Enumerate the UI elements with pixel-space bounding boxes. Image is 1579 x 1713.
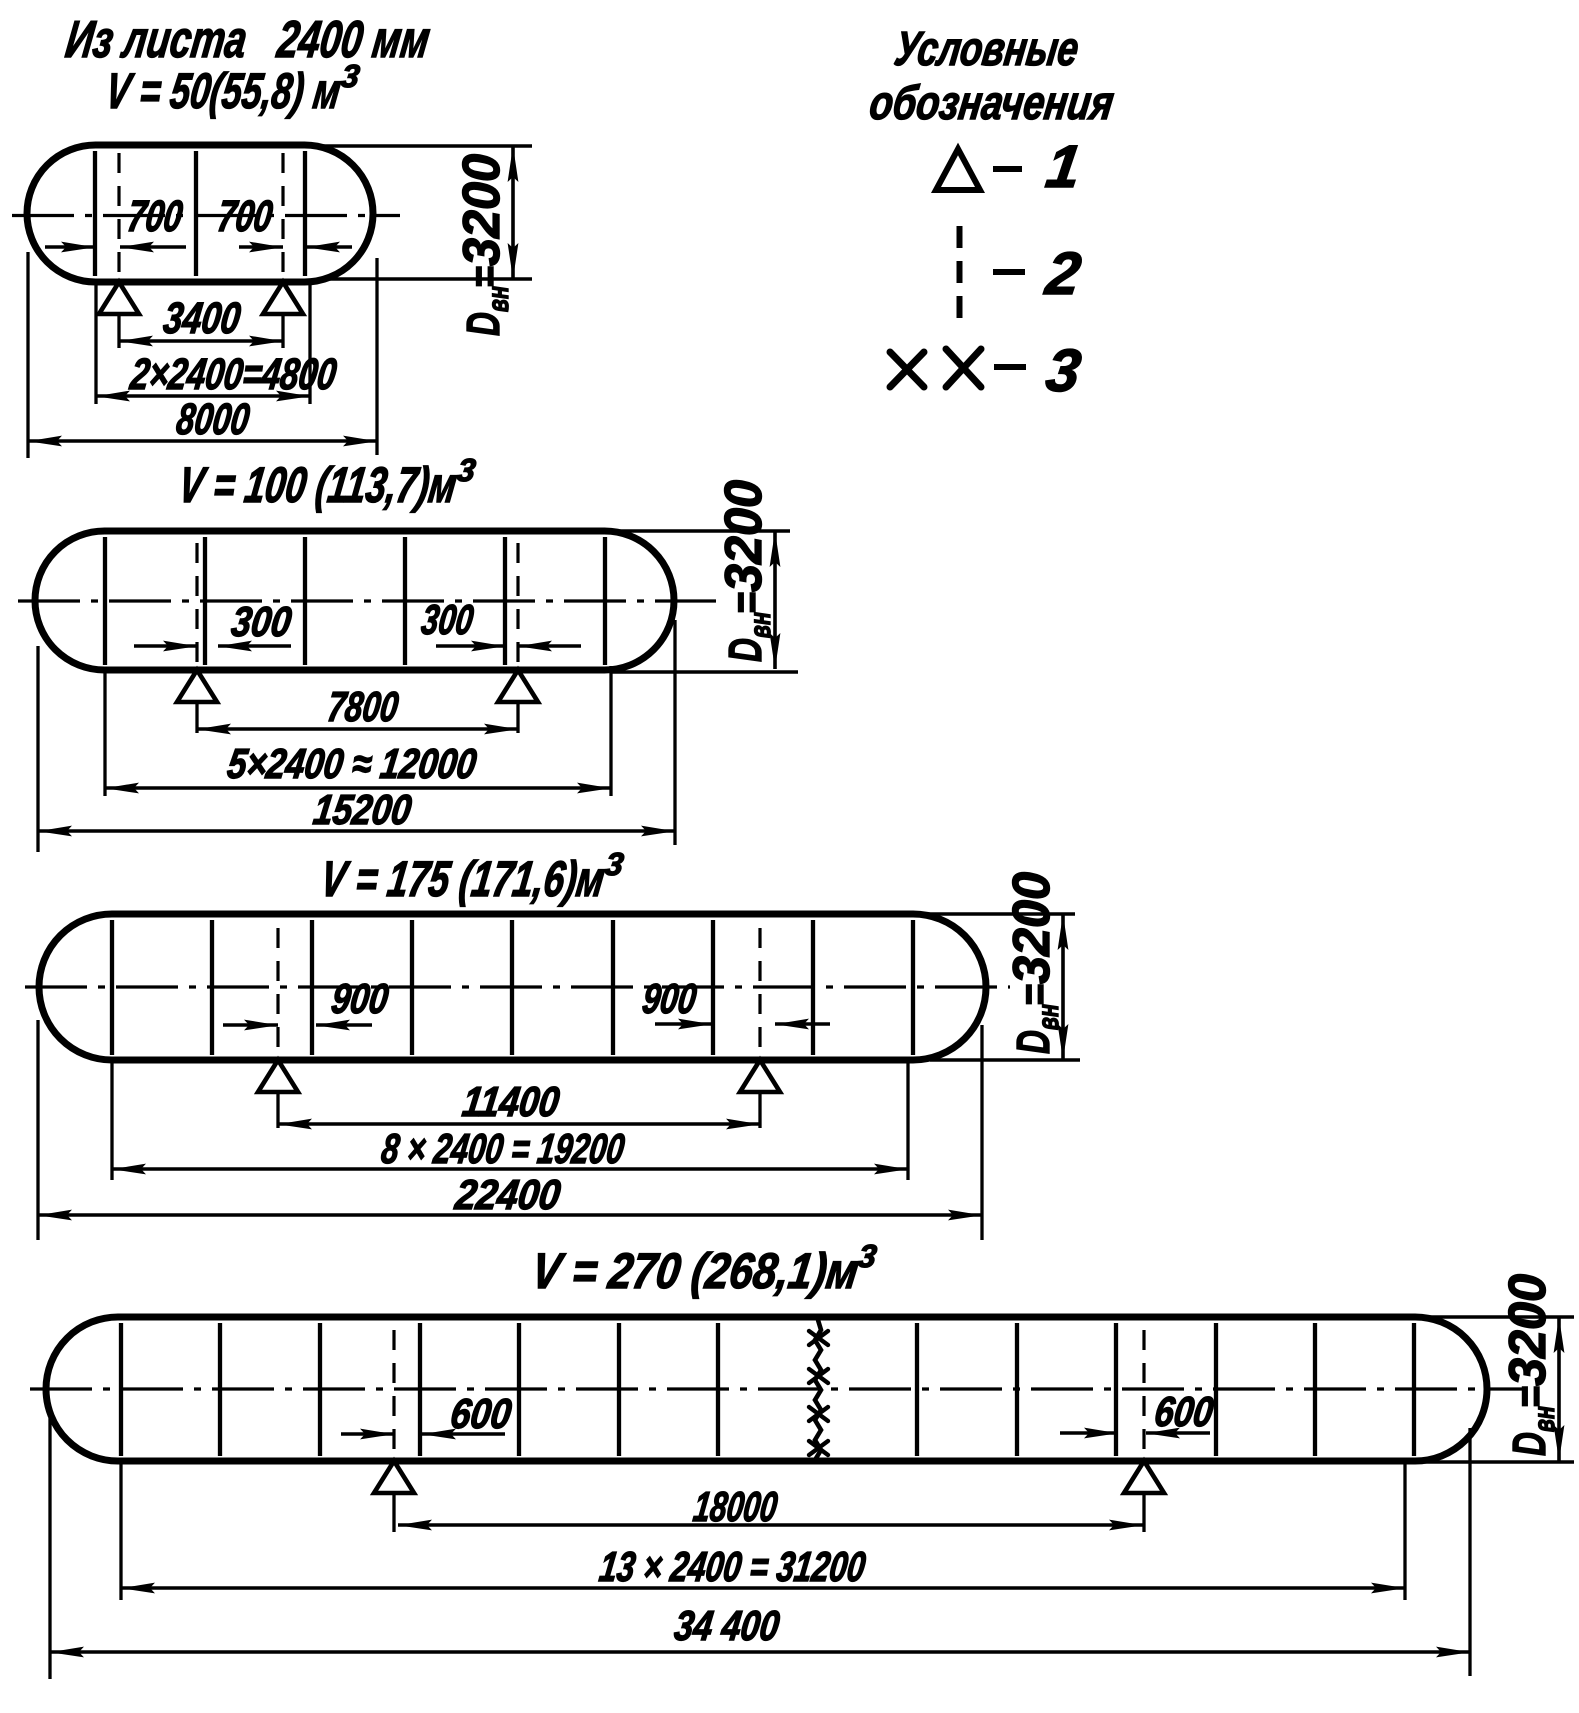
svg-text:=: = — [1506, 1386, 1555, 1408]
svg-text:3200: 3200 — [453, 154, 511, 266]
svg-text:600: 600 — [448, 1390, 515, 1437]
svg-text:900: 900 — [329, 975, 392, 1022]
svg-text:600: 600 — [1152, 1388, 1217, 1435]
svg-text:300: 300 — [229, 598, 295, 645]
svg-text:8000: 8000 — [174, 395, 253, 444]
svg-text:13 × 2400 = 31200: 13 × 2400 = 31200 — [597, 1543, 869, 1590]
svg-text:V = 175 (171,6)м: V = 175 (171,6)м — [317, 851, 608, 907]
svg-text:700: 700 — [215, 192, 276, 241]
svg-text:7800: 7800 — [325, 683, 402, 730]
svg-text:V = 100 (113,7)м: V = 100 (113,7)м — [175, 457, 460, 513]
svg-text:Условные: Условные — [891, 22, 1082, 76]
svg-text:15200: 15200 — [311, 786, 415, 833]
svg-text:22400: 22400 — [452, 1171, 564, 1218]
svg-text:300: 300 — [419, 596, 477, 643]
svg-text:8 × 2400 = 19200: 8 × 2400 = 19200 — [379, 1125, 628, 1172]
svg-text:3400: 3400 — [161, 294, 244, 343]
svg-text:11400: 11400 — [460, 1078, 563, 1125]
svg-text:обозначения: обозначения — [866, 76, 1117, 130]
svg-text:2×2400=4800: 2×2400=4800 — [127, 350, 340, 399]
svg-text:V = 50(55,8) м: V = 50(55,8) м — [102, 63, 344, 119]
svg-text:Из листа 2400 мм: Из листа 2400 мм — [62, 11, 433, 69]
svg-text:3200: 3200 — [1003, 872, 1061, 984]
svg-text:=: = — [722, 592, 771, 614]
svg-text:34 400: 34 400 — [672, 1602, 783, 1649]
svg-text:=: = — [1010, 984, 1059, 1006]
svg-text:3200: 3200 — [1499, 1274, 1557, 1386]
svg-text:=: = — [460, 266, 509, 288]
svg-text:V = 270 (268,1)м: V = 270 (268,1)м — [528, 1243, 862, 1299]
svg-text:900: 900 — [640, 975, 700, 1022]
svg-text:3200: 3200 — [715, 480, 773, 592]
svg-text:700: 700 — [125, 192, 186, 241]
svg-text:5×2400 ≈ 12000: 5×2400 ≈ 12000 — [225, 740, 480, 787]
svg-text:18000: 18000 — [691, 1483, 781, 1530]
